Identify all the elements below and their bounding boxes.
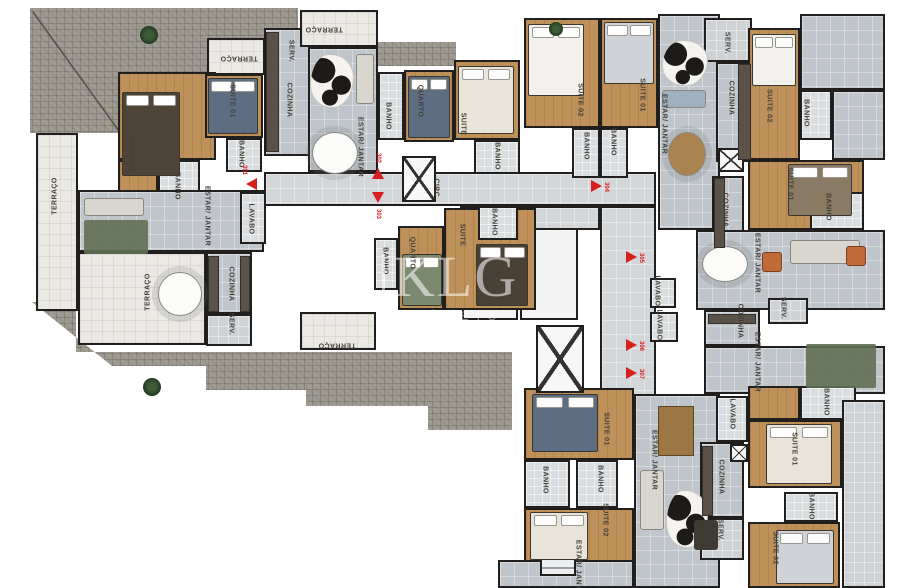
room-label: TERRAÇO: [318, 342, 355, 349]
dining-table: [312, 132, 358, 174]
watermark-bar-icon: [382, 254, 385, 300]
room-label: LAVABO: [654, 276, 661, 307]
room-label: SUITE 02: [772, 531, 779, 565]
plant: [143, 378, 161, 396]
room-label: BANHO: [825, 193, 832, 221]
unit-number: 305: [638, 250, 644, 266]
room-label: BANHO: [610, 128, 617, 156]
room-label: SUITE 01: [791, 432, 798, 466]
room-label: BANHO: [808, 492, 815, 520]
stairwell-box: [536, 325, 584, 393]
room-label: QUARTO: [417, 85, 424, 118]
room-label: ESTAR/ JANTAR: [357, 117, 364, 177]
entry-arrow-icon: [246, 178, 257, 190]
room-label: BANHO: [597, 465, 604, 493]
room-label: SUITE 01: [787, 167, 794, 201]
elevator-box: [402, 156, 436, 202]
room-label: SUITE 02: [128, 138, 135, 172]
room-label: ESTAR/ JANTAR: [754, 233, 761, 293]
bed: [604, 22, 654, 84]
room-label: SERV.: [717, 519, 724, 541]
entry-arrow-icon: [626, 367, 637, 379]
entry-arrow-icon: [626, 339, 637, 351]
room-label: BANHO: [583, 132, 590, 160]
unit-number: 307: [638, 366, 644, 382]
entry-arrow-icon: [372, 168, 384, 179]
room-label: BANHO: [823, 388, 830, 416]
room-label: COZINHA: [728, 81, 735, 116]
rug: [84, 220, 148, 254]
dining-table: [702, 246, 748, 282]
room-label: SERV.: [228, 313, 235, 335]
unit-number: 302: [375, 150, 381, 166]
room-label: TERRAÇO: [145, 273, 152, 310]
room-banho2-303: [478, 206, 518, 240]
room-label: SUITE: [460, 113, 467, 136]
room-label: BANHO: [385, 102, 392, 130]
dining-table: [668, 132, 706, 176]
room-label: COZINHA: [228, 267, 235, 302]
room-label: COZINHA: [722, 193, 729, 228]
plant: [549, 22, 563, 36]
entry-arrow-icon: [626, 251, 637, 263]
room-label: TERRAÇO: [305, 26, 342, 33]
room-label: SUITE: [459, 224, 466, 247]
room-label: COZINHA: [718, 460, 725, 495]
kitchen-counter: [266, 32, 279, 152]
floor-plan: TERRAÇOSUITE 02BANHOSUITE 01BANHOCOZINHA…: [0, 0, 900, 588]
room-corner-305: [800, 14, 885, 90]
bed: [776, 530, 834, 584]
sofa: [84, 198, 144, 216]
room-label: CIRC.: [433, 178, 440, 199]
armchair: [846, 246, 866, 266]
bed: [408, 76, 450, 138]
room-label: BANHO: [542, 466, 549, 494]
room-label: ESTAR/ JANTAR: [754, 332, 761, 392]
room-label: TERRAÇO: [52, 177, 59, 214]
kitchen-counter: [702, 446, 713, 516]
room-label: LAVABO: [729, 399, 736, 430]
watermark-subtitle: IMÓVEIS: [398, 309, 518, 323]
watermark-brand: KLG: [393, 248, 518, 306]
room-label: LAVABO: [656, 310, 663, 341]
room-label: SUITE 02: [602, 503, 609, 537]
dining-table: [158, 272, 202, 316]
room-label: ESTAR/ JANTAR: [575, 540, 582, 588]
room-label: COZINHA: [286, 83, 293, 118]
bed: [766, 424, 832, 484]
room-label: SUITE 01: [229, 84, 236, 118]
kitchen-counter: [208, 256, 219, 312]
room-label: SERV.: [724, 32, 731, 54]
room-serv-305: [768, 298, 808, 324]
room-label: SERV.: [288, 40, 295, 62]
armchair: [694, 520, 718, 550]
armchair: [762, 252, 782, 272]
room-label: COZINHA: [737, 304, 744, 339]
rug: [806, 344, 876, 388]
room-label: SUITE 01: [603, 412, 610, 446]
unit-number: 303: [375, 206, 381, 222]
dining-table: [658, 406, 694, 456]
room-terrace-left: [36, 133, 78, 311]
bed: [752, 34, 796, 86]
room-label: SUITE 02: [577, 83, 584, 117]
bed: [532, 394, 598, 452]
unit-number: 304: [603, 179, 609, 195]
room-label: ESTAR/ JANTAR: [651, 430, 658, 490]
shaft-small-307: [730, 444, 748, 462]
room-label: TERRAÇO: [220, 55, 257, 62]
plant: [140, 26, 158, 44]
room-label: BANHO: [803, 99, 810, 127]
kitchen-counter: [708, 314, 756, 324]
entry-arrow-icon: [591, 180, 602, 192]
room-tv-305: [832, 90, 885, 160]
kitchen-counter: [240, 256, 250, 312]
room-label: BANHO: [491, 208, 498, 236]
sofa: [356, 54, 374, 104]
room-label: BANHO: [174, 172, 181, 200]
bed: [788, 164, 852, 216]
sofa: [662, 90, 706, 108]
room-label: LAVABO: [248, 204, 255, 235]
room-label: BANHO: [494, 142, 501, 170]
kitchen-counter: [738, 64, 751, 160]
room-label: ESTAR/ JANTAR: [204, 186, 211, 246]
masonry-strip-center: [376, 42, 456, 66]
room-label: SUITE 02: [766, 89, 773, 123]
watermark: KLG IMÓVEIS: [382, 248, 518, 323]
unit-number: 306: [638, 338, 644, 354]
room-label: SERV.: [780, 297, 787, 319]
room-label: ESTAR/ JANTAR: [661, 94, 668, 154]
unit-number: 301: [241, 162, 247, 178]
entry-arrow-icon: [372, 192, 384, 203]
room-closet-307: [842, 400, 885, 588]
room-label: SUITE 01: [639, 78, 646, 112]
room-lavabo-306: [650, 312, 678, 342]
